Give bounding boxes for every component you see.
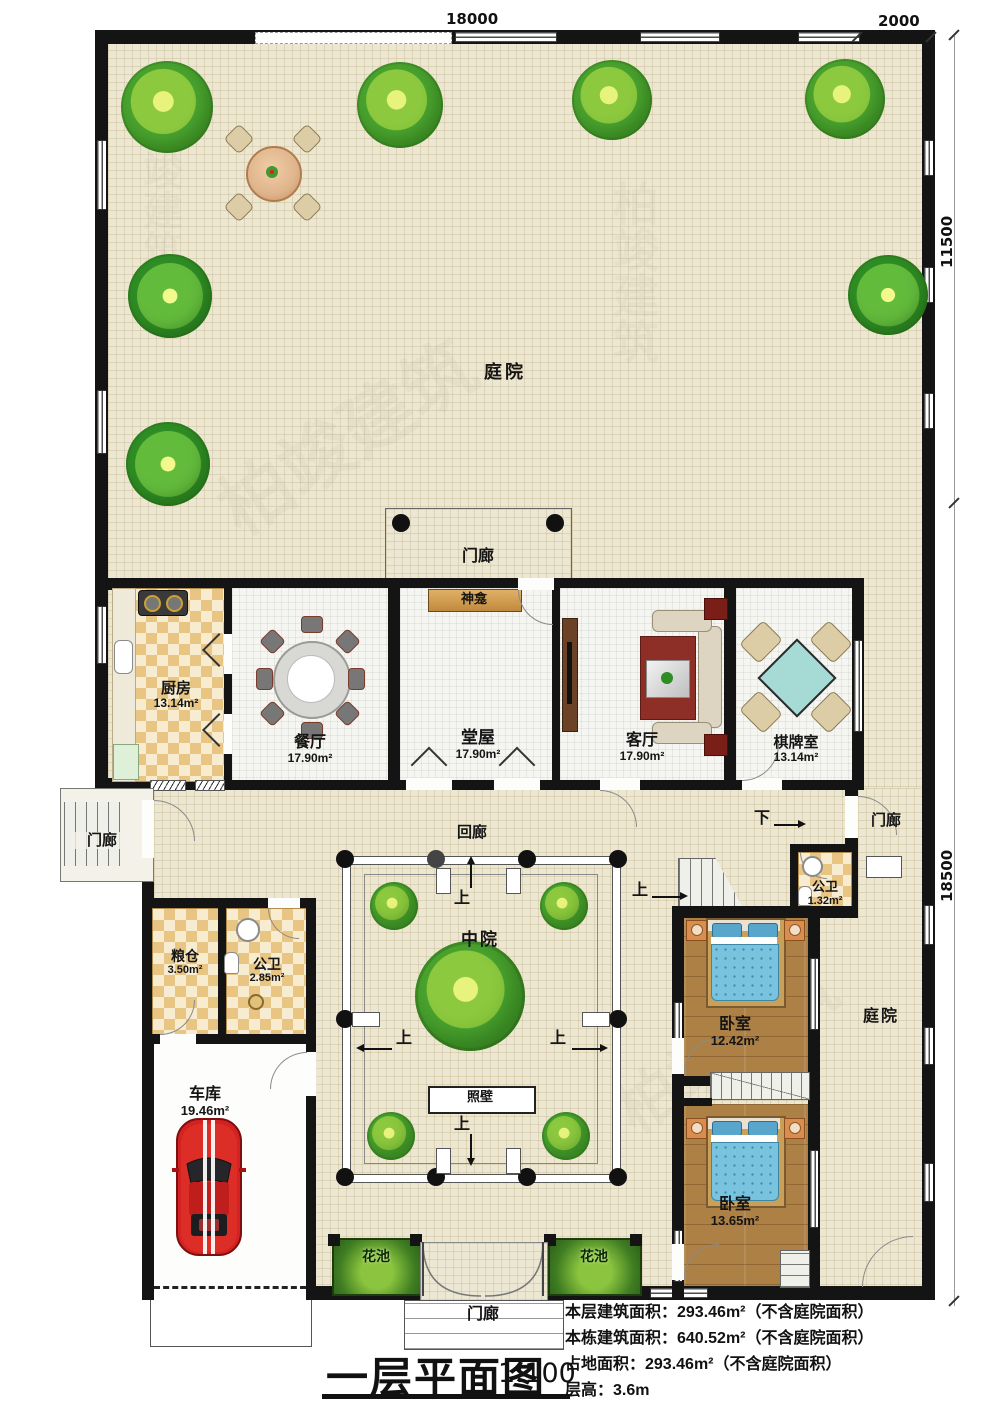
- cloister-rail-top: [345, 856, 619, 865]
- door-gap: [306, 1052, 316, 1096]
- door-gap: [160, 1034, 196, 1044]
- bath-sink: [236, 918, 260, 942]
- door-gap: [600, 778, 640, 790]
- dim-right-upper: 11500: [938, 216, 956, 268]
- column: [518, 850, 536, 868]
- courtyard-label: 庭院: [846, 1008, 916, 1026]
- double-door-arcs: [420, 1240, 546, 1300]
- pillow: [748, 1121, 778, 1136]
- arrow-line: [362, 1048, 392, 1050]
- door-gap: [672, 1038, 684, 1074]
- arrow-head: [467, 1158, 475, 1166]
- kitchen-label: 厨房 13.14m²: [134, 680, 218, 711]
- nightstand: [784, 1118, 805, 1139]
- middle-court-label: 中院: [440, 930, 520, 950]
- door-gap: [518, 578, 554, 590]
- bath-sink: [802, 856, 823, 877]
- mattress: [711, 944, 779, 1001]
- central-tree: [415, 941, 525, 1051]
- tree: [370, 882, 418, 930]
- porch-label: 门廊: [450, 1306, 516, 1324]
- wall-dining-hall: [388, 578, 400, 788]
- window: [810, 1150, 818, 1228]
- bed: [706, 1116, 786, 1208]
- arrow-line: [470, 862, 472, 888]
- wall-hall-living: [552, 578, 560, 788]
- inter-bedroom-stairs: [710, 1072, 810, 1100]
- window: [810, 958, 818, 1030]
- window: [640, 32, 720, 42]
- mattress: [711, 1142, 779, 1201]
- tree: [540, 882, 588, 930]
- porch-label: 门廊: [72, 832, 132, 849]
- outer-wall-right: [922, 30, 935, 1300]
- car: [172, 1116, 246, 1258]
- tree: [121, 61, 213, 153]
- window: [455, 32, 557, 42]
- up-label: 上: [394, 1030, 414, 1048]
- arrow-line: [470, 1134, 472, 1160]
- pillow: [748, 923, 778, 938]
- midcourt-step: [436, 868, 451, 894]
- sofa-main: [698, 626, 722, 728]
- tv: [567, 642, 572, 704]
- arrow-head: [356, 1044, 364, 1052]
- kitchen-vent-window: [195, 780, 225, 791]
- flower-bed-label: 花池: [566, 1248, 622, 1264]
- flower-bed-label: 花池: [348, 1248, 404, 1264]
- bath-east-label: 公卫 1.32m²: [796, 880, 854, 908]
- window: [97, 140, 106, 210]
- screen-wall-label: 照壁: [448, 1090, 512, 1105]
- window: [854, 640, 862, 732]
- midcourt-step: [582, 1012, 610, 1027]
- dining-chair: [348, 668, 365, 690]
- granary-label: 粮仓 3.50m²: [152, 948, 218, 977]
- bedroom-divider-south: [672, 1098, 712, 1106]
- stat-floor-area: 本层建筑面积：293.46m²（不含庭院面积）: [565, 1300, 995, 1326]
- arrow-head: [680, 892, 688, 900]
- cloister-rail-bottom: [345, 1174, 619, 1183]
- column: [609, 1168, 627, 1186]
- column: [609, 1010, 627, 1028]
- table-plant: [661, 672, 673, 684]
- window: [924, 1163, 933, 1202]
- dining-chair: [256, 668, 273, 690]
- bed: [706, 918, 786, 1008]
- bedroom-divider: [672, 1076, 712, 1086]
- midcourt-step: [506, 1148, 521, 1174]
- door-gap: [268, 898, 300, 908]
- window: [924, 140, 933, 176]
- dining-chair: [301, 616, 323, 633]
- window: [97, 606, 106, 664]
- tree: [357, 62, 443, 148]
- service-wall-right: [306, 898, 316, 1300]
- cloister-label: 回廊: [442, 824, 502, 841]
- pillow: [712, 923, 742, 938]
- garden-plant: [266, 166, 278, 178]
- dim-top-right: 2000: [878, 12, 920, 30]
- flower-bed: [548, 1238, 642, 1296]
- dining-label: 餐厅 17.90m²: [264, 734, 356, 766]
- column: [609, 850, 627, 868]
- arrow-head: [600, 1044, 608, 1052]
- kitchen-sink: [114, 640, 133, 674]
- window: [924, 393, 933, 429]
- nightstand: [686, 920, 707, 941]
- midcourt-step: [506, 868, 521, 894]
- bed-post: [630, 1234, 642, 1246]
- garage-apron: [150, 1300, 312, 1347]
- tree: [805, 59, 885, 139]
- hall-label: 堂屋 17.90m²: [428, 728, 528, 761]
- pillow: [712, 1121, 742, 1136]
- column: [336, 850, 354, 868]
- arrow-head: [467, 856, 475, 864]
- mahjong-label: 棋牌室 13.14m²: [746, 734, 846, 765]
- side-table: [704, 598, 728, 620]
- palm-tree: [126, 422, 210, 506]
- stove-burner: [166, 595, 183, 612]
- tree: [542, 1112, 590, 1160]
- dim-right-lower: 18500: [938, 850, 956, 902]
- dining-table-top: [287, 655, 335, 703]
- up-label: 上: [548, 1030, 568, 1048]
- garage-label: 车库 19.46m²: [160, 1086, 250, 1119]
- kitchen-vent-window: [150, 780, 186, 791]
- dim-top-main: 18000: [446, 10, 498, 28]
- corner-stairs: [780, 1250, 810, 1288]
- bedroom-south-label: 卧室 13.65m²: [692, 1196, 778, 1229]
- fridge: [113, 744, 139, 780]
- title-underline: [322, 1394, 570, 1399]
- stats-block: 本层建筑面积：293.46m²（不含庭院面积） 本栋建筑面积：640.52m²（…: [565, 1300, 995, 1404]
- tree: [572, 60, 652, 140]
- arrow-line: [652, 896, 682, 898]
- bedroom-north-label: 卧室 12.42m²: [692, 1016, 778, 1049]
- top-porch: [385, 508, 572, 582]
- wall-kitchen-dining: [224, 578, 232, 788]
- nightstand: [686, 1118, 707, 1139]
- courtyard-label: 庭院: [470, 362, 540, 383]
- shrine-label: 神龛: [448, 592, 500, 607]
- column: [427, 850, 445, 868]
- flower-bed: [332, 1238, 422, 1296]
- porch-column: [392, 514, 410, 532]
- midcourt-step: [352, 1012, 380, 1027]
- window: [97, 390, 106, 454]
- column: [336, 1168, 354, 1186]
- down-label: 下: [752, 810, 772, 828]
- door-gap: [672, 1244, 684, 1280]
- roof-overhang-dashed: [255, 32, 452, 44]
- bed-post: [328, 1234, 340, 1246]
- palm-tree: [848, 255, 928, 335]
- porch-column: [546, 514, 564, 532]
- porch-label: 门廊: [445, 548, 511, 566]
- stat-floor-height: 层高：3.6m: [565, 1378, 995, 1404]
- stat-building-area: 本栋建筑面积：640.52m²（不含庭院面积）: [565, 1326, 995, 1352]
- side-table: [704, 734, 728, 756]
- living-label: 客厅 17.90m²: [596, 732, 688, 764]
- sofa-arm: [652, 610, 712, 632]
- up-label: 上: [630, 882, 650, 900]
- stat-footprint-area: 占地面积：293.46m²（不含庭院面积）: [565, 1352, 995, 1378]
- porch-label: 门廊: [856, 812, 916, 829]
- stove-burner: [144, 595, 161, 612]
- up-label: 上: [452, 890, 472, 908]
- tree: [367, 1112, 415, 1160]
- arrow-line: [774, 824, 800, 826]
- bedroom-wall-top: [672, 906, 858, 918]
- up-label: 上: [452, 1116, 472, 1134]
- arrow-head: [798, 820, 806, 828]
- window: [924, 905, 933, 945]
- floor-plan: 柏竣建筑 柏竣建筑 柏竣建筑 柏竣建筑 庭院 门廊: [0, 0, 1000, 1414]
- palm-tree: [128, 254, 212, 338]
- door-gap: [142, 800, 154, 858]
- midcourt-step: [436, 1148, 451, 1174]
- window: [924, 1027, 933, 1065]
- bath-east-wall-top: [790, 844, 858, 852]
- nightstand: [784, 920, 805, 941]
- floor-drain: [248, 994, 264, 1010]
- arrow-line: [572, 1048, 602, 1050]
- bath-west-label: 公卫 2.85m²: [234, 956, 300, 985]
- porch-step: [866, 856, 902, 878]
